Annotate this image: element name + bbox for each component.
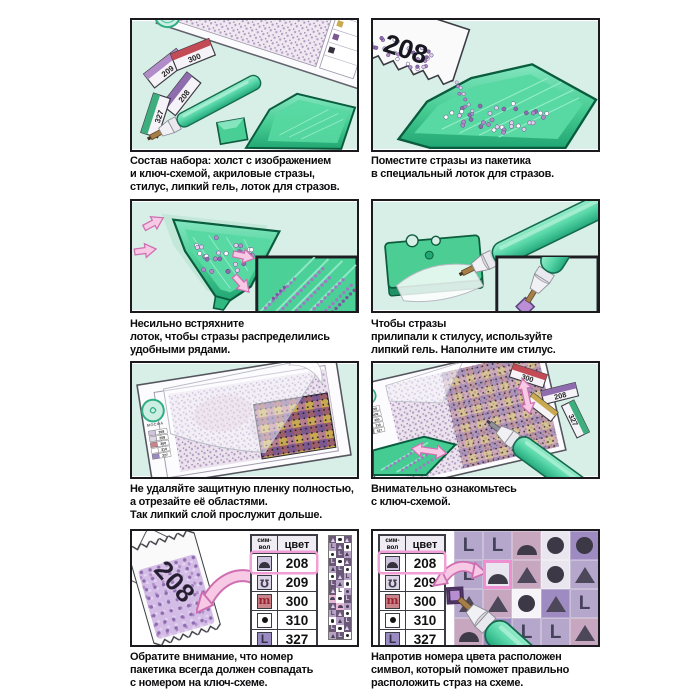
strip-cell	[336, 558, 343, 565]
arches-symbol-icon: m	[258, 596, 270, 605]
canvas-illustration: МОСФА 208 209 300 310 327	[137, 363, 351, 477]
strip-cell	[336, 595, 343, 602]
strip-symbol-icon	[346, 605, 349, 608]
strip-symbol-icon	[338, 575, 342, 579]
strip-symbol-icon: L	[338, 551, 342, 557]
strip-cell	[344, 566, 351, 573]
chart-cell: L	[512, 618, 541, 645]
strip-symbol-icon	[345, 560, 349, 564]
symbol-cell	[252, 611, 278, 629]
chart-cell	[512, 531, 541, 560]
key-table-header: сим- волцвет	[380, 536, 444, 553]
color-number-cell: 327	[278, 630, 316, 647]
tray-closeup-inset	[257, 257, 357, 311]
chart-cell: L	[483, 531, 512, 560]
glue-gel-square	[217, 118, 248, 144]
strip-symbol-icon	[345, 552, 349, 556]
strip-cell	[336, 603, 343, 610]
triangle-symbol-icon	[488, 596, 508, 612]
symbol-cell	[380, 554, 406, 572]
panel-1-illustration: 209 300 208 327	[130, 18, 359, 152]
strip-cell	[336, 543, 343, 550]
strip-symbol-icon	[338, 538, 341, 541]
key-table-header: сим- волцвет	[252, 536, 316, 553]
strip-symbol-icon	[331, 575, 334, 578]
panel-7-caption: Обратите внимание, что номер пакетика вс…	[130, 651, 359, 691]
letterL-symbol-icon: L	[389, 633, 396, 645]
circle-symbol-icon	[518, 595, 535, 612]
symbol-box: m	[385, 594, 400, 609]
symbol-cell: m	[380, 592, 406, 610]
strip-symbol-icon	[338, 627, 341, 630]
symbol-cell	[252, 554, 278, 572]
chart-cell: L	[570, 589, 599, 618]
strip-cell	[329, 566, 336, 573]
symbol-box: m	[257, 594, 272, 609]
dot-symbol-icon	[390, 617, 396, 623]
strip-cell: L	[336, 588, 343, 595]
color-key-table: сим- волцвет208Ω209m300310L327	[250, 534, 318, 647]
panel-4-illustration	[371, 199, 600, 313]
strip-symbol-icon	[338, 612, 342, 616]
chart-cell	[570, 560, 599, 589]
symbol-box: L	[257, 632, 272, 647]
strip-symbol-icon: L	[331, 611, 335, 617]
panel-8-caption: Напротив номера цвета расположен символ,…	[371, 651, 600, 691]
L-symbol-icon: L	[550, 623, 562, 642]
triangle-symbol-icon	[546, 596, 566, 612]
strip-cell	[329, 573, 336, 580]
strip-symbol-icon	[331, 634, 335, 638]
panel-5-illustration: МОСФА 208 209 300 310 327	[130, 361, 359, 479]
strip-cell	[329, 595, 336, 602]
dome-symbol-icon	[459, 632, 479, 642]
strip-symbol-icon: L	[331, 544, 335, 550]
chart-cell: L	[454, 560, 483, 589]
strip-symbol-icon: L	[331, 581, 335, 587]
strip-symbol-icon	[338, 545, 342, 549]
strip-cell	[344, 543, 351, 550]
strip-cell: L	[344, 595, 351, 602]
strip-cell: L	[344, 617, 351, 624]
chart-grid: LLLLLLL	[454, 531, 599, 645]
strip-symbol-icon	[331, 619, 334, 622]
key-table-row: 208	[380, 553, 444, 572]
strip-symbol-icon	[346, 545, 349, 548]
strip-cell	[329, 617, 336, 624]
color-number-cell: 300	[278, 592, 316, 610]
strip-symbol-icon: L	[346, 574, 350, 580]
strip-cell	[329, 551, 336, 558]
strip-cell: L	[329, 580, 336, 587]
strip-cell	[344, 551, 351, 558]
chart-cell	[512, 560, 541, 589]
circle-symbol-icon	[547, 537, 564, 554]
strip-cell	[344, 610, 351, 617]
chart-cell	[570, 618, 599, 645]
symbol-box: Ω	[385, 575, 400, 590]
strip-symbol-icon	[346, 612, 349, 615]
triangle-symbol-icon	[517, 567, 537, 583]
hook-symbol-icon: Ω	[388, 577, 397, 588]
color-number-cell: 209	[278, 573, 316, 591]
strip-cell: L	[329, 543, 336, 550]
strip-symbol-icon: L	[338, 588, 342, 594]
chart-cell	[483, 589, 512, 618]
color-number-cell: 208	[406, 554, 444, 572]
instruction-sheet: 209 300 208 327	[0, 0, 700, 700]
strip-symbol-icon: L	[338, 633, 342, 639]
strip-symbol-icon	[331, 604, 335, 608]
strip-symbol-icon	[338, 560, 341, 563]
panel-5-caption: Не удаляйте защитную пленку полностью, а…	[130, 483, 359, 523]
panel-7-illustration: 208 сим- волцвет208Ω209m300310L327 LLLLL…	[130, 529, 359, 647]
symbol-box: Ω	[257, 575, 272, 590]
chart-cell: L	[541, 618, 570, 645]
symbol-box: L	[385, 632, 400, 647]
strip-symbol-icon	[331, 567, 335, 571]
hook-symbol-icon: Ω	[260, 577, 269, 588]
strip-symbol-icon: L	[338, 566, 342, 572]
L-symbol-icon: L	[579, 594, 591, 613]
strip-symbol-icon: L	[346, 596, 350, 602]
color-number-cell: 208	[278, 554, 316, 572]
symbol-cell: L	[380, 630, 406, 647]
L-symbol-icon: L	[492, 623, 504, 642]
letterL-symbol-icon: L	[261, 633, 268, 645]
chart-cell	[541, 589, 570, 618]
strip-cell	[336, 536, 343, 543]
arches-symbol-icon: m	[386, 596, 398, 605]
L-symbol-icon: L	[463, 565, 475, 584]
strip-symbol-icon	[338, 597, 341, 600]
triangle-symbol-icon	[575, 567, 595, 583]
panel-3-illustration	[130, 199, 359, 313]
chart-cell	[541, 560, 570, 589]
strip-cell	[344, 580, 351, 587]
symbol-column-header: сим- вол	[252, 536, 278, 553]
key-table-row: 208	[252, 553, 316, 572]
strip-symbol-icon: L	[331, 625, 335, 631]
strip-symbol-icon: L	[346, 618, 350, 624]
L-symbol-icon: L	[463, 536, 475, 555]
color-number-cell: 209	[406, 573, 444, 591]
panel-2-illustration: 208	[371, 18, 600, 152]
strip-cell: L	[336, 551, 343, 558]
strip-cell	[329, 536, 336, 543]
color-key-table: сим- волцвет208Ω209m300310L327	[378, 534, 446, 647]
triangle-symbol-icon	[459, 596, 479, 612]
strip-cell: L	[336, 566, 343, 573]
symbol-cell: Ω	[252, 573, 278, 591]
key-table-row: 310	[252, 610, 316, 629]
strip-symbol-icon	[346, 568, 349, 571]
chart-cell	[454, 618, 483, 645]
key-table-row: L327	[252, 629, 316, 647]
symbol-cell: Ω	[380, 573, 406, 591]
key-table-row: L327	[380, 629, 444, 647]
strip-cell: L	[344, 573, 351, 580]
dome-symbol-icon	[387, 562, 398, 568]
strip-cell	[344, 603, 351, 610]
chart-cell	[512, 589, 541, 618]
chart-cell: L	[483, 618, 512, 645]
strip-cell: L	[336, 632, 343, 639]
strip-cell	[344, 632, 351, 639]
strip-cell	[344, 536, 351, 543]
chart-cell: L	[454, 531, 483, 560]
symbol-cell: L	[252, 630, 278, 647]
strip-cell	[329, 588, 336, 595]
strip-cell	[344, 558, 351, 565]
dome-symbol-icon	[259, 562, 270, 568]
panel-6-caption: Внимательно ознакомьтесь с ключ-схемой.	[371, 483, 600, 509]
chart-cell	[541, 531, 570, 560]
key-table-row: Ω209	[380, 572, 444, 591]
strip-cell: L	[329, 558, 336, 565]
strip-symbol-icon: L	[331, 559, 335, 565]
strip-symbol-icon	[346, 582, 349, 585]
chart-strip: LLLLLLLLLLLL	[328, 535, 352, 640]
strip-symbol-icon	[331, 553, 334, 556]
strip-cell: L	[329, 625, 336, 632]
symbol-box	[257, 556, 272, 571]
color-number-cell: 310	[278, 611, 316, 629]
color-column-header: цвет	[278, 536, 316, 553]
panel-2-caption: Поместите стразы из пакетика в специальн…	[371, 155, 600, 181]
key-table-row: m300	[252, 591, 316, 610]
strip-cell	[336, 573, 343, 580]
color-number-cell: 300	[406, 592, 444, 610]
panel-6-illustration: 208 209 300 310 327	[371, 361, 600, 479]
circle-symbol-icon	[576, 537, 593, 554]
strip-symbol-icon	[331, 538, 335, 542]
dome-symbol-icon	[517, 545, 537, 555]
strip-symbol-icon	[338, 605, 343, 608]
strip-cell	[336, 580, 343, 587]
panel-4-caption: Чтобы стразы прилипали к стилусу, исполь…	[371, 318, 600, 358]
panel-8-illustration: сим- волцвет208Ω209m300310L327 LLLLLLL	[371, 529, 600, 647]
strip-cell	[344, 588, 351, 595]
strip-symbol-icon	[330, 597, 335, 600]
color-column-header: цвет	[406, 536, 444, 553]
strip-cell	[336, 610, 343, 617]
symbol-box	[385, 556, 400, 571]
strip-cell	[344, 625, 351, 632]
strip-symbol-icon	[331, 589, 335, 593]
chart-cell	[483, 560, 512, 589]
key-table-row: 310	[380, 610, 444, 629]
symbol-cell	[380, 611, 406, 629]
strip-symbol-icon	[338, 619, 342, 623]
key-table-row: m300	[380, 591, 444, 610]
L-symbol-icon: L	[521, 623, 533, 642]
strip-symbol-icon	[346, 634, 349, 637]
dot-symbol-icon	[262, 617, 268, 623]
strip-cell	[329, 632, 336, 639]
symbol-box	[385, 613, 400, 628]
circle-symbol-icon	[547, 566, 564, 583]
symbol-column-header: сим- вол	[380, 536, 406, 553]
key-table-row: Ω209	[252, 572, 316, 591]
symbol-cell: m	[252, 592, 278, 610]
strip-cell	[336, 625, 343, 632]
strip-symbol-icon	[345, 626, 349, 630]
chart-cell	[570, 531, 599, 560]
panel-1-caption: Состав набора: холст с изображением и кл…	[130, 155, 359, 195]
color-number-cell: 327	[406, 630, 444, 647]
strip-symbol-icon	[338, 582, 342, 586]
strip-symbol-icon	[346, 590, 349, 593]
symbol-box	[257, 613, 272, 628]
triangle-symbol-icon	[575, 625, 595, 641]
strip-cell: L	[329, 610, 336, 617]
strip-cell	[329, 603, 336, 610]
strip-symbol-icon	[345, 538, 349, 542]
chart-cell	[454, 589, 483, 618]
L-symbol-icon: L	[492, 536, 504, 555]
color-number-cell: 310	[406, 611, 444, 629]
panel-3-caption: Несильно встряхните лоток, чтобы стразы …	[130, 318, 359, 358]
strip-cell	[336, 617, 343, 624]
dome-symbol-icon	[488, 574, 508, 584]
